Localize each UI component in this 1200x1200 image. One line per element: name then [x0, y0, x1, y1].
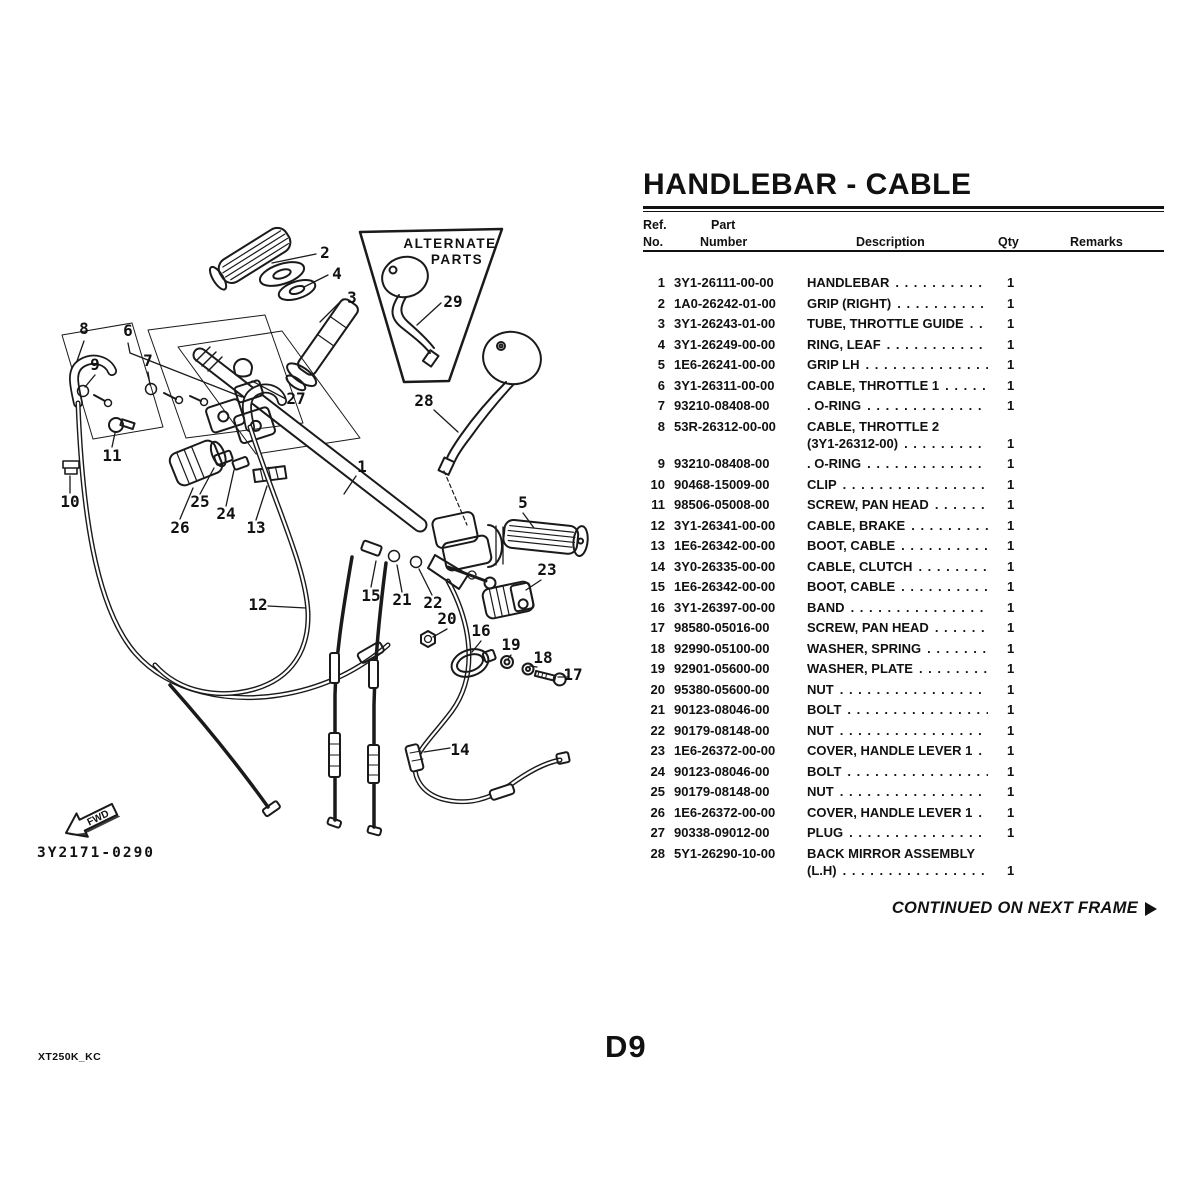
- ref-no-cell: 26: [643, 805, 665, 820]
- dot-leader: . . . . . . . . . . . . . . . . . . . . …: [897, 296, 988, 311]
- description-text: BAND: [807, 600, 845, 615]
- description-cell: COVER, HANDLE LEVER 1. . . . . . . . . .…: [807, 743, 988, 758]
- part-number-cell: 98506-05008-00: [674, 497, 798, 512]
- callout-6: 6: [123, 321, 133, 340]
- dot-leader: . . . . . . . . . . . . . . . . . . . . …: [851, 600, 988, 615]
- callout-21: 21: [392, 590, 411, 609]
- callout-19: 19: [501, 635, 520, 654]
- dot-leader: . . . . . . . . . . . . . . . . . . . . …: [849, 825, 988, 840]
- qty-cell: 1: [1007, 518, 1047, 533]
- qty-cell: 1: [1007, 661, 1047, 676]
- table-row: 231E6-26372-00-00COVER, HANDLE LEVER 1. …: [643, 743, 1164, 764]
- table-row: 2790338-09012-00PLUG. . . . . . . . . . …: [643, 825, 1164, 846]
- ref-no-cell: 12: [643, 518, 665, 533]
- description-cell: BOLT. . . . . . . . . . . . . . . . . . …: [807, 764, 988, 779]
- description-cell: BOOT, CABLE. . . . . . . . . . . . . . .…: [807, 579, 988, 594]
- callout-25: 25: [190, 492, 209, 511]
- qty-cell: 1: [1007, 497, 1047, 512]
- qty-cell: 1: [1007, 477, 1047, 492]
- description-text: CABLE, CLUTCH: [807, 559, 912, 574]
- header-description: Description: [856, 235, 925, 249]
- dot-leader: . . . . . . . . . . . . . . . . . . . . …: [978, 805, 988, 820]
- table-row: 853R-26312-00-00CABLE, THROTTLE 2: [643, 419, 1164, 436]
- description-text: BACK MIRROR ASSEMBLY: [807, 846, 975, 861]
- ref-no-cell: 7: [643, 398, 665, 413]
- alternate-parts-label-line2: PARTS: [431, 252, 483, 267]
- description-text: BOLT: [807, 764, 841, 779]
- callout-28: 28: [414, 391, 433, 410]
- description-cell: COVER, HANDLE LEVER 1. . . . . . . . . .…: [807, 805, 988, 820]
- ref-no-cell: 8: [643, 419, 665, 434]
- description-text: (L.H): [807, 863, 837, 878]
- ref-no-cell: 19: [643, 661, 665, 676]
- part-number-cell: 3Y1-26249-00-00: [674, 337, 798, 352]
- qty-cell: 1: [1007, 275, 1047, 290]
- callout-26: 26: [170, 518, 189, 537]
- description-cell: CABLE, CLUTCH. . . . . . . . . . . . . .…: [807, 559, 988, 574]
- callout-7: 7: [143, 351, 153, 370]
- lever-cover-drawing: [481, 580, 534, 619]
- next-frame-arrow-icon: [1145, 902, 1157, 916]
- description-text: CABLE, BRAKE: [807, 518, 905, 533]
- qty-cell: 1: [1007, 600, 1047, 615]
- table-row: 1992901-05600-00WASHER, PLATE. . . . . .…: [643, 661, 1164, 682]
- ref-no-cell: 13: [643, 538, 665, 553]
- table-row: 43Y1-26249-00-00RING, LEAF. . . . . . . …: [643, 337, 1164, 358]
- dot-leader: . . . . . . . . . . . . . . . . . . . . …: [847, 764, 988, 779]
- ref-no-cell: 24: [643, 764, 665, 779]
- dot-leader: . . . . . . . . . . . . . . . . . . . . …: [904, 436, 988, 451]
- dot-leader: . . . . . . . . . . . . . . . . . . . . …: [919, 661, 988, 676]
- description-cell: GRIP LH. . . . . . . . . . . . . . . . .…: [807, 357, 988, 372]
- table-row: 1090468-15009-00CLIP. . . . . . . . . . …: [643, 477, 1164, 498]
- table-row: 123Y1-26341-00-00CABLE, BRAKE. . . . . .…: [643, 518, 1164, 539]
- dot-leader: . . . . . . . . . . . . . . . . . . . . …: [840, 723, 988, 738]
- drawing-number: 3Y2171-0290: [37, 845, 155, 861]
- description-text: GRIP LH: [807, 357, 860, 372]
- ref-no-cell: 1: [643, 275, 665, 290]
- dot-leader: . . . . . . . . . . . . . . . . . . . . …: [840, 784, 988, 799]
- ref-no-cell: 20: [643, 682, 665, 697]
- description-text: CABLE, THROTTLE 2: [807, 419, 939, 434]
- callout-5: 5: [518, 493, 528, 512]
- callout-4: 4: [332, 264, 342, 283]
- ref-no-cell: 4: [643, 337, 665, 352]
- description-cell: NUT. . . . . . . . . . . . . . . . . . .…: [807, 723, 988, 738]
- alternate-parts-label-line1: ALTERNATE: [403, 236, 496, 251]
- ref-no-cell: 2: [643, 296, 665, 311]
- qty-cell: 1: [1007, 316, 1047, 331]
- qty-cell: 1: [1007, 743, 1047, 758]
- part-number-cell: 90338-09012-00: [674, 825, 798, 840]
- description-cell: (3Y1-26312-00). . . . . . . . . . . . . …: [807, 436, 988, 451]
- qty-cell: 1: [1007, 357, 1047, 372]
- callout-2: 2: [320, 243, 330, 262]
- part-number-cell: 3Y1-26341-00-00: [674, 518, 798, 533]
- description-text: CABLE, THROTTLE 1: [807, 378, 939, 393]
- part-number-cell: 3Y1-26311-00-00: [674, 378, 798, 393]
- page-title: HANDLEBAR - CABLE: [643, 168, 971, 202]
- dot-leader: . . . . . . . . . . . . . . . . . . . . …: [911, 518, 988, 533]
- description-text: PLUG: [807, 825, 843, 840]
- part-number-cell: 3Y0-26335-00-00: [674, 559, 798, 574]
- qty-cell: 1: [1007, 764, 1047, 779]
- callout-23: 23: [537, 560, 556, 579]
- description-text: NUT: [807, 723, 834, 738]
- ref-no-cell: 18: [643, 641, 665, 656]
- dot-leader: . . . . . . . . . . . . . . . . . . . . …: [901, 538, 988, 553]
- table-row: 2490123-08046-00BOLT. . . . . . . . . . …: [643, 764, 1164, 785]
- table-row: 993210-08408-00. O-RING. . . . . . . . .…: [643, 456, 1164, 477]
- dot-leader: . . . . . . . . . . . . . . . . . . . . …: [927, 641, 988, 656]
- qty-cell: 1: [1007, 682, 1047, 697]
- part-number-cell: 90179-08148-00: [674, 784, 798, 799]
- part-number-cell: 90468-15009-00: [674, 477, 798, 492]
- callout-20: 20: [437, 609, 456, 628]
- table-row: 151E6-26342-00-00BOOT, CABLE. . . . . . …: [643, 579, 1164, 600]
- callout-18: 18: [533, 648, 552, 667]
- table-row: 163Y1-26397-00-00BAND. . . . . . . . . .…: [643, 600, 1164, 621]
- part-number-cell: 90123-08046-00: [674, 764, 798, 779]
- description-text: WASHER, PLATE: [807, 661, 913, 676]
- callout-17: 17: [563, 665, 582, 684]
- table-row: 2095380-05600-00NUT. . . . . . . . . . .…: [643, 682, 1164, 703]
- dot-leader: . . . . . . . . . . . . . . . . . . . . …: [895, 275, 988, 290]
- description-text: TUBE, THROTTLE GUIDE: [807, 316, 964, 331]
- table-row: (3Y1-26312-00). . . . . . . . . . . . . …: [643, 436, 1164, 457]
- description-text: NUT: [807, 682, 834, 697]
- description-text: SCREW, PAN HEAD: [807, 620, 929, 635]
- description-text: GRIP (RIGHT): [807, 296, 891, 311]
- header-rule: [643, 250, 1164, 252]
- description-cell: NUT. . . . . . . . . . . . . . . . . . .…: [807, 682, 988, 697]
- callout-8: 8: [79, 319, 89, 338]
- table-row: 2590179-08148-00NUT. . . . . . . . . . .…: [643, 784, 1164, 805]
- part-number-cell: 3Y1-26397-00-00: [674, 600, 798, 615]
- table-row: 285Y1-26290-10-00BACK MIRROR ASSEMBLY: [643, 846, 1164, 863]
- page-number: D9: [605, 1029, 647, 1065]
- ref-no-cell: 28: [643, 846, 665, 861]
- callout-13: 13: [246, 518, 265, 537]
- table-row: 13Y1-26111-00-00HANDLEBAR. . . . . . . .…: [643, 275, 1164, 296]
- qty-cell: 1: [1007, 641, 1047, 656]
- ref-no-cell: 17: [643, 620, 665, 635]
- description-text: CLIP: [807, 477, 837, 492]
- ref-no-cell: 27: [643, 825, 665, 840]
- qty-cell: 1: [1007, 702, 1047, 717]
- description-cell: HANDLEBAR. . . . . . . . . . . . . . . .…: [807, 275, 988, 290]
- table-row: 63Y1-26311-00-00CABLE, THROTTLE 1. . . .…: [643, 378, 1164, 399]
- table-row: 21A0-26242-01-00GRIP (RIGHT). . . . . . …: [643, 296, 1164, 317]
- description-cell: NUT. . . . . . . . . . . . . . . . . . .…: [807, 784, 988, 799]
- description-cell: BOOT, CABLE. . . . . . . . . . . . . . .…: [807, 538, 988, 553]
- ref-no-cell: 6: [643, 378, 665, 393]
- ref-no-cell: 23: [643, 743, 665, 758]
- document-code: XT250K_KC: [38, 1051, 101, 1063]
- part-number-cell: 93210-08408-00: [674, 398, 798, 413]
- qty-cell: 1: [1007, 805, 1047, 820]
- description-cell: CABLE, BRAKE. . . . . . . . . . . . . . …: [807, 518, 988, 533]
- qty-cell: 1: [1007, 825, 1047, 840]
- ref-no-cell: 14: [643, 559, 665, 574]
- mirror-drawing: [439, 327, 546, 525]
- qty-cell: 1: [1007, 398, 1047, 413]
- alternate-mirror-drawing: [378, 252, 439, 367]
- part-number-cell: 3Y1-26243-01-00: [674, 316, 798, 331]
- table-row: 2290179-08148-00NUT. . . . . . . . . . .…: [643, 723, 1164, 744]
- description-text: . O-RING: [807, 456, 861, 471]
- qty-cell: 1: [1007, 538, 1047, 553]
- callout-24: 24: [216, 504, 235, 523]
- part-number-cell: 93210-08408-00: [674, 456, 798, 471]
- dot-leader: . . . . . . . . . . . . . . . . . . . . …: [866, 357, 989, 372]
- table-row: 793210-08408-00. O-RING. . . . . . . . .…: [643, 398, 1164, 419]
- table-row: 33Y1-26243-01-00TUBE, THROTTLE GUIDE. . …: [643, 316, 1164, 337]
- qty-cell: 1: [1007, 620, 1047, 635]
- qty-cell: 1: [1007, 456, 1047, 471]
- qty-cell: 1: [1007, 723, 1047, 738]
- callout-3: 3: [347, 288, 357, 307]
- dot-leader: . . . . . . . . . . . . . . . . . . . . …: [840, 682, 988, 697]
- header-ref-line1: Ref.: [643, 218, 667, 232]
- callout-16: 16: [471, 621, 490, 640]
- description-cell: BOLT. . . . . . . . . . . . . . . . . . …: [807, 702, 988, 717]
- dot-leader: . . . . . . . . . . . . . . . . . . . . …: [887, 337, 988, 352]
- ref-no-cell: 22: [643, 723, 665, 738]
- dot-leader: . . . . . . . . . . . . . . . . . . . . …: [970, 316, 988, 331]
- table-row: 143Y0-26335-00-00CABLE, CLUTCH. . . . . …: [643, 559, 1164, 580]
- dot-leader: . . . . . . . . . . . . . . . . . . . . …: [978, 743, 988, 758]
- ref-no-cell: 3: [643, 316, 665, 331]
- ref-no-cell: 9: [643, 456, 665, 471]
- part-number-cell: 98580-05016-00: [674, 620, 798, 635]
- callout-10: 10: [60, 492, 79, 511]
- callout-11: 11: [102, 446, 121, 465]
- callout-14: 14: [450, 740, 469, 759]
- cables-drawing: [78, 403, 570, 836]
- description-text: NUT: [807, 784, 834, 799]
- header-qty: Qty: [998, 235, 1019, 249]
- header-ref-line2: No.: [643, 235, 663, 249]
- continued-on-next-frame: CONTINUED ON NEXT FRAME: [892, 899, 1157, 918]
- part-number-cell: 95380-05600-00: [674, 682, 798, 697]
- part-number-cell: 92990-05100-00: [674, 641, 798, 656]
- description-cell: SCREW, PAN HEAD. . . . . . . . . . . . .…: [807, 497, 988, 512]
- header-remarks: Remarks: [1070, 235, 1123, 249]
- dot-leader: . . . . . . . . . . . . . . . . . . . . …: [843, 863, 988, 878]
- table-row: 1198506-05008-00SCREW, PAN HEAD. . . . .…: [643, 497, 1164, 518]
- callout-29: 29: [443, 292, 462, 311]
- description-cell: CLIP. . . . . . . . . . . . . . . . . . …: [807, 477, 988, 492]
- description-cell: BAND. . . . . . . . . . . . . . . . . . …: [807, 600, 988, 615]
- part-number-cell: 1E6-26342-00-00: [674, 579, 798, 594]
- description-cell: CABLE, THROTTLE 1. . . . . . . . . . . .…: [807, 378, 988, 393]
- continued-label: CONTINUED ON NEXT FRAME: [892, 899, 1138, 918]
- leader-lines: [70, 254, 567, 752]
- table-row: 2190123-08046-00BOLT. . . . . . . . . . …: [643, 702, 1164, 723]
- part-number-cell: 3Y1-26111-00-00: [674, 275, 798, 290]
- description-cell: TUBE, THROTTLE GUIDE. . . . . . . . . . …: [807, 316, 988, 331]
- qty-cell: 1: [1007, 559, 1047, 574]
- qty-cell: 1: [1007, 784, 1047, 799]
- grip-right-drawing: [207, 224, 295, 292]
- description-text: BOOT, CABLE: [807, 579, 895, 594]
- ref-no-cell: 11: [643, 497, 665, 512]
- dot-leader: . . . . . . . . . . . . . . . . . . . . …: [867, 398, 988, 413]
- dot-leader: . . . . . . . . . . . . . . . . . . . . …: [918, 559, 988, 574]
- dot-leader: . . . . . . . . . . . . . . . . . . . . …: [901, 579, 988, 594]
- ref-no-cell: 25: [643, 784, 665, 799]
- description-text: RING, LEAF: [807, 337, 881, 352]
- part-number-cell: 90179-08148-00: [674, 723, 798, 738]
- dot-leader: . . . . . . . . . . . . . . . . . . . . …: [847, 702, 988, 717]
- qty-cell: 1: [1007, 296, 1047, 311]
- header-part-line1: Part: [711, 218, 735, 232]
- description-cell: RING, LEAF. . . . . . . . . . . . . . . …: [807, 337, 988, 352]
- description-text: BOLT: [807, 702, 841, 717]
- description-cell: CABLE, THROTTLE 2: [807, 419, 988, 434]
- fwd-arrow-icon: FWD: [60, 797, 122, 845]
- callout-27: 27: [286, 389, 305, 408]
- description-cell: SCREW, PAN HEAD. . . . . . . . . . . . .…: [807, 620, 988, 635]
- description-cell: (L.H). . . . . . . . . . . . . . . . . .…: [807, 863, 988, 878]
- qty-cell: 1: [1007, 378, 1047, 393]
- parts-table-rows: 13Y1-26111-00-00HANDLEBAR. . . . . . . .…: [643, 275, 1164, 883]
- part-number-cell: 1E6-26342-00-00: [674, 538, 798, 553]
- dot-leader: . . . . . . . . . . . . . . . . . . . . …: [867, 456, 988, 471]
- part-number-cell: 5Y1-26290-10-00: [674, 846, 798, 861]
- table-row: 1892990-05100-00WASHER, SPRING. . . . . …: [643, 641, 1164, 662]
- description-text: HANDLEBAR: [807, 275, 889, 290]
- qty-cell: 1: [1007, 863, 1047, 878]
- description-text: WASHER, SPRING: [807, 641, 921, 656]
- description-cell: . O-RING. . . . . . . . . . . . . . . . …: [807, 456, 988, 471]
- part-number-cell: 1A0-26242-01-00: [674, 296, 798, 311]
- alternate-parts-box: ALTERNATE PARTS: [360, 229, 502, 382]
- callout-9: 9: [90, 355, 100, 374]
- ref-no-cell: 10: [643, 477, 665, 492]
- dot-leader: . . . . . . . . . . . . . . . . . . . . …: [945, 378, 988, 393]
- ref-no-cell: 5: [643, 357, 665, 372]
- ref-no-cell: 15: [643, 579, 665, 594]
- ref-no-cell: 16: [643, 600, 665, 615]
- table-row: 131E6-26342-00-00BOOT, CABLE. . . . . . …: [643, 538, 1164, 559]
- part-number-cell: 53R-26312-00-00: [674, 419, 798, 434]
- qty-cell: 1: [1007, 337, 1047, 352]
- callout-1: 1: [357, 457, 367, 476]
- description-cell: WASHER, SPRING. . . . . . . . . . . . . …: [807, 641, 988, 656]
- parts-catalog-page: ALTERNATE PARTS: [0, 0, 1200, 1200]
- description-cell: PLUG. . . . . . . . . . . . . . . . . . …: [807, 825, 988, 840]
- description-text: BOOT, CABLE: [807, 538, 895, 553]
- description-cell: GRIP (RIGHT). . . . . . . . . . . . . . …: [807, 296, 988, 311]
- description-text: COVER, HANDLE LEVER 1: [807, 743, 972, 758]
- part-number-cell: 1E6-26372-00-00: [674, 805, 798, 820]
- callout-15: 15: [361, 586, 380, 605]
- description-cell: . O-RING. . . . . . . . . . . . . . . . …: [807, 398, 988, 413]
- dot-leader: . . . . . . . . . . . . . . . . . . . . …: [935, 497, 988, 512]
- table-row: (L.H). . . . . . . . . . . . . . . . . .…: [643, 863, 1164, 884]
- part-number-cell: 1E6-26372-00-00: [674, 743, 798, 758]
- title-double-rule-top: [643, 206, 1164, 209]
- part-number-cell: 90123-08046-00: [674, 702, 798, 717]
- parts-diagram: ALTERNATE PARTS: [20, 195, 620, 867]
- callout-12: 12: [248, 595, 267, 614]
- header-part-line2: Number: [700, 235, 747, 249]
- description-text: SCREW, PAN HEAD: [807, 497, 929, 512]
- description-cell: BACK MIRROR ASSEMBLY: [807, 846, 988, 861]
- part-number-cell: 92901-05600-00: [674, 661, 798, 676]
- dot-leader: . . . . . . . . . . . . . . . . . . . . …: [843, 477, 988, 492]
- ref-no-cell: 21: [643, 702, 665, 717]
- description-text: COVER, HANDLE LEVER 1: [807, 805, 972, 820]
- title-double-rule-bottom: [643, 211, 1164, 212]
- description-text: (3Y1-26312-00): [807, 436, 898, 451]
- description-cell: WASHER, PLATE. . . . . . . . . . . . . .…: [807, 661, 988, 676]
- table-row: 1798580-05016-00SCREW, PAN HEAD. . . . .…: [643, 620, 1164, 641]
- part-number-cell: 1E6-26241-00-00: [674, 357, 798, 372]
- qty-cell: 1: [1007, 436, 1047, 451]
- table-row: 51E6-26241-00-00GRIP LH. . . . . . . . .…: [643, 357, 1164, 378]
- qty-cell: 1: [1007, 579, 1047, 594]
- description-text: . O-RING: [807, 398, 861, 413]
- dot-leader: . . . . . . . . . . . . . . . . . . . . …: [935, 620, 988, 635]
- table-row: 261E6-26372-00-00COVER, HANDLE LEVER 1. …: [643, 805, 1164, 826]
